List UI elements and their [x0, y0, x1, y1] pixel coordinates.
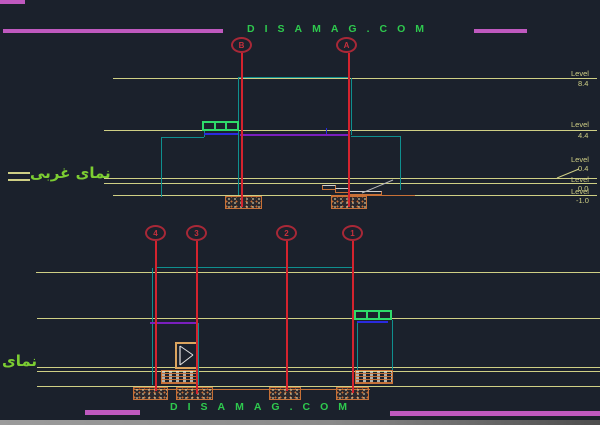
- level-label-word: Level: [571, 70, 589, 77]
- entry-step-1: [322, 185, 336, 190]
- title-dash-2: [8, 179, 30, 181]
- railing-post: [225, 123, 227, 129]
- lower-window-bay-left-wall: [357, 322, 358, 370]
- railing-post: [378, 312, 380, 318]
- door-swing-symbol: [177, 344, 196, 367]
- plinth-hatch-window-bay: [355, 370, 393, 384]
- grid-line-b: [241, 53, 243, 207]
- railing-post: [214, 123, 216, 129]
- upper-level-line-0-0: [104, 183, 597, 184]
- entry-ramp-diagonal: [360, 178, 396, 196]
- watermark-bottom: DISAMAG.COM: [170, 401, 357, 413]
- upper-left-wall: [161, 137, 162, 197]
- grid-bubble-4: 4: [145, 225, 166, 241]
- upper-roof-railing: [202, 121, 239, 131]
- upper-right-bay-wall: [400, 136, 401, 190]
- lower-roof-railing: [354, 310, 392, 320]
- cad-drawing-canvas: DISAMAG.COM B A Level 8.4 Level 4.4 Leve…: [0, 0, 600, 425]
- top-short-bar: [474, 29, 527, 33]
- grid-bubble-2: 2: [276, 225, 297, 241]
- lower-door-bay-wall: [198, 323, 199, 385]
- lower-roof-line: [157, 267, 353, 268]
- level-label-word: Level: [571, 188, 589, 195]
- grid-bubble-b: B: [231, 37, 252, 53]
- level-label-word: Level: [571, 121, 589, 128]
- lower-elevation-title: نمای: [2, 352, 37, 370]
- grid-bubble-a: A: [336, 37, 357, 53]
- top-long-bar: [3, 29, 223, 33]
- upper-coping-purple-line: [240, 134, 349, 136]
- upper-footing-b: [225, 196, 262, 209]
- upper-level-line-0-4: [104, 178, 597, 179]
- level-label-value: 4.4: [578, 132, 588, 139]
- upper-roof-line: [238, 77, 350, 78]
- grid-line-1: [352, 241, 354, 393]
- bottom-long-bar: [390, 411, 600, 416]
- top-left-corner-bar: [0, 0, 25, 4]
- upper-coping-blue-line: [204, 133, 238, 135]
- window-bottom-border: [0, 420, 600, 425]
- upper-step-parapet: [161, 137, 204, 138]
- railing-post: [366, 312, 368, 318]
- lower-level-line-4: [37, 371, 600, 372]
- lower-footing-3: [176, 387, 213, 400]
- lower-level-line-2: [37, 318, 600, 319]
- lower-level-line-1: [36, 272, 600, 273]
- upper-mid-wall: [238, 77, 239, 195]
- lower-level-line-3: [37, 367, 600, 368]
- upper-tall-right-wall: [351, 78, 352, 135]
- lower-coping-purple-line: [150, 322, 198, 324]
- grid-line-4: [155, 241, 157, 391]
- lower-footing-2: [269, 387, 301, 400]
- lower-footing-4: [133, 387, 168, 400]
- upper-level-line-8-4: [113, 78, 597, 79]
- upper-elevation-title: نمای غربی: [30, 164, 111, 182]
- bottom-short-bar: [85, 410, 140, 415]
- level-label-value: -1.0: [576, 197, 589, 204]
- level-label-word: Level: [571, 156, 589, 163]
- level-label-word: Level: [571, 176, 589, 183]
- title-dash-1: [8, 172, 30, 174]
- watermark-top: DISAMAG.COM: [247, 23, 434, 35]
- footing-connector-line: [133, 389, 370, 390]
- level-label-value: 8.4: [578, 80, 588, 87]
- grid-bubble-1: 1: [342, 225, 363, 241]
- entry-door: [175, 342, 198, 369]
- plinth-hatch-door-bay: [161, 370, 198, 384]
- lower-level-line-5: [37, 386, 600, 387]
- grid-line-2: [286, 241, 288, 391]
- grid-line-a: [348, 53, 350, 207]
- upper-right-bay-top: [351, 136, 400, 137]
- lower-coping-blue-line: [357, 321, 388, 323]
- grid-bubble-3: 3: [186, 225, 207, 241]
- grid-line-3: [196, 241, 198, 394]
- lower-left-wall: [152, 268, 153, 385]
